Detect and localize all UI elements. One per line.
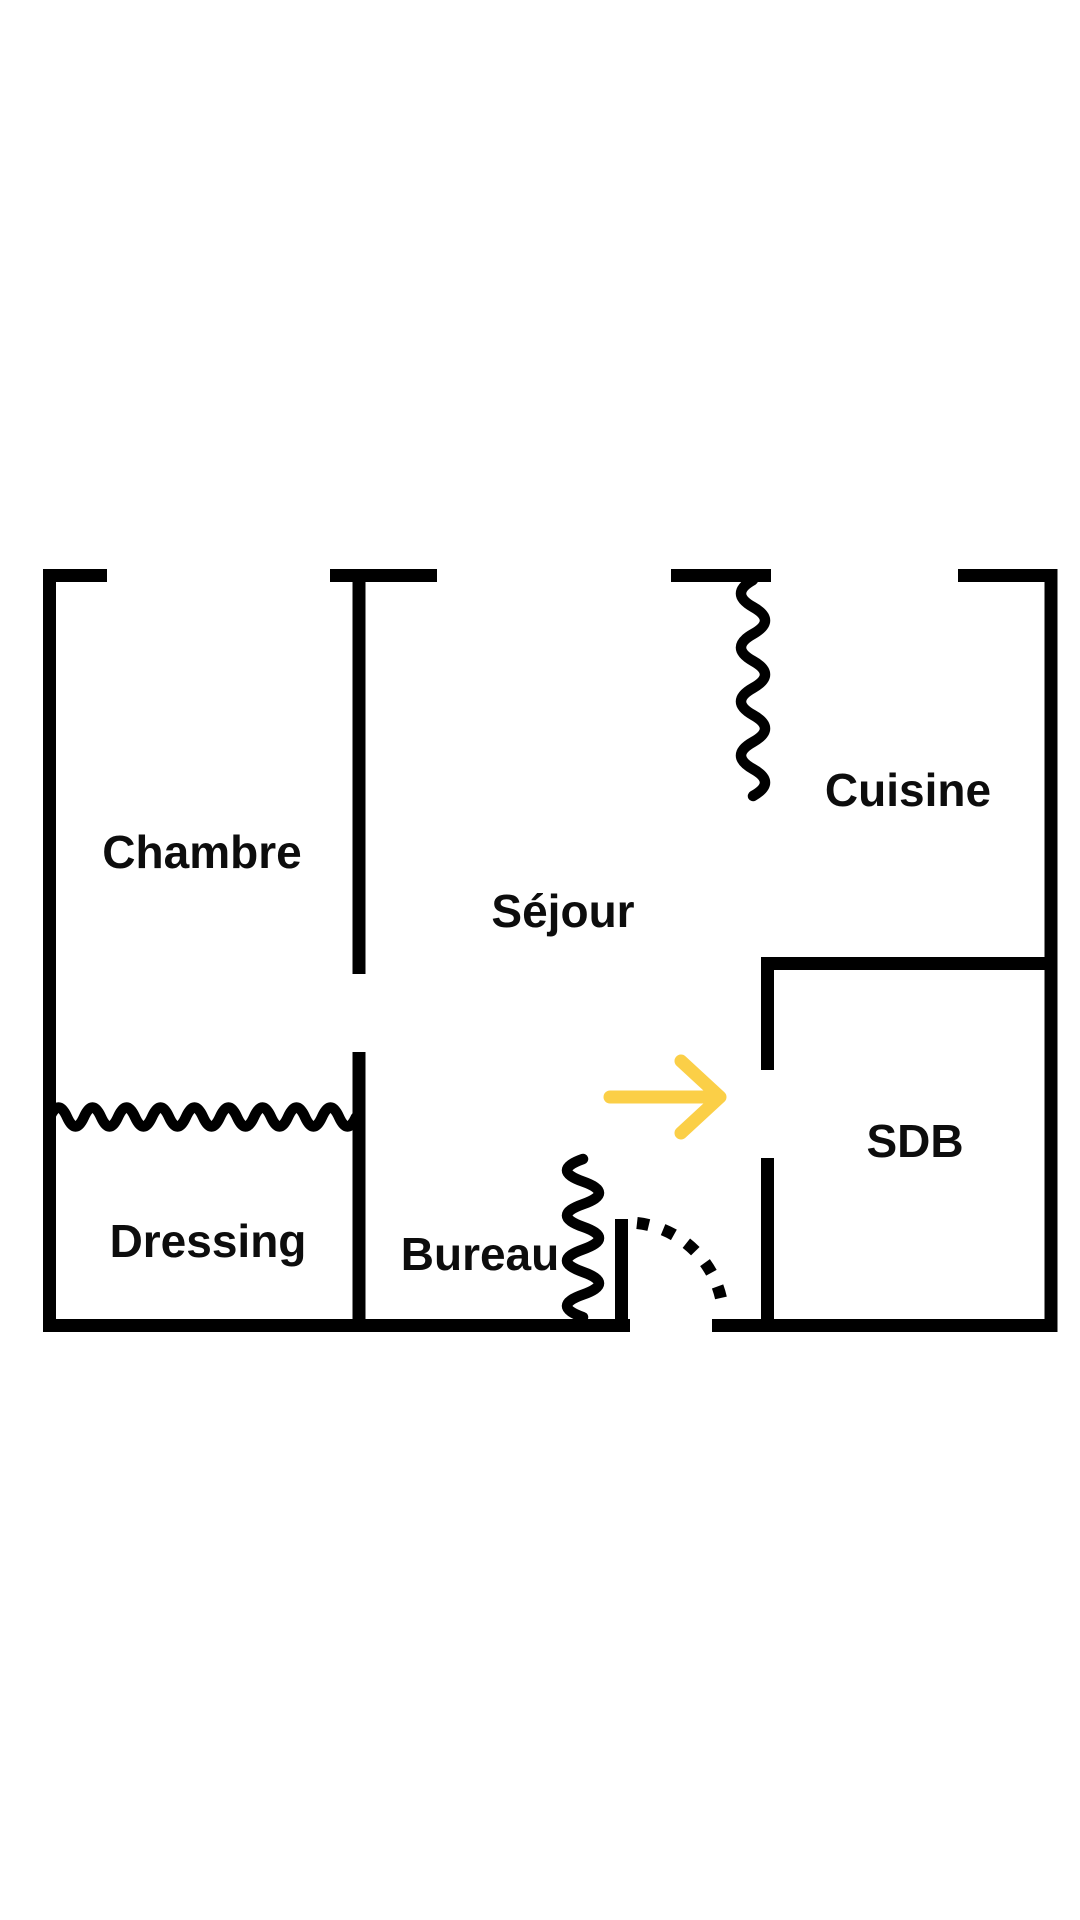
room-label-chambre: Chambre: [102, 826, 301, 878]
arrow-right-icon: [610, 1061, 720, 1133]
room-label-dressing: Dressing: [110, 1215, 307, 1267]
door-swing-arc: [637, 1223, 723, 1311]
wavy-symbols: [50, 580, 765, 1317]
wavy-line-cuisine-partition: [741, 580, 765, 796]
floor-plan-page: Chambre Séjour Cuisine Dressing Bureau S…: [0, 0, 1080, 1920]
room-label-cuisine: Cuisine: [825, 764, 991, 816]
room-label-sdb: SDB: [866, 1115, 963, 1167]
wavy-line-dressing-partition: [50, 1108, 356, 1127]
room-label-sejour: Séjour: [491, 885, 634, 937]
room-labels: Chambre Séjour Cuisine Dressing Bureau S…: [102, 764, 991, 1280]
floor-plan: Chambre Séjour Cuisine Dressing Bureau S…: [0, 0, 1080, 1920]
wavy-line-entry-partition: [567, 1159, 599, 1317]
room-label-bureau: Bureau: [401, 1228, 559, 1280]
